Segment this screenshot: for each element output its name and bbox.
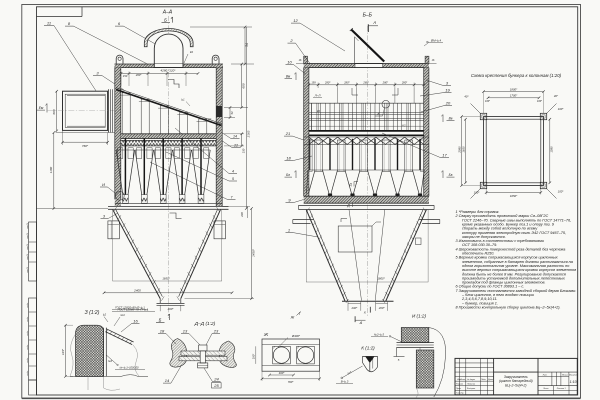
svg-text:К (1:2): К (1:2) [361, 346, 375, 351]
svg-text:280*: 280* [401, 81, 408, 85]
svg-text:Вв: Вв [449, 117, 453, 121]
svg-text:подп.: подп. [26, 357, 29, 363]
svg-text:20: 20 [445, 101, 451, 106]
svg-text:12: 12 [293, 18, 298, 23]
svg-text:подп.: подп. [26, 344, 29, 350]
svg-text:13: 13 [183, 329, 188, 334]
svg-text:11: 11 [47, 21, 51, 26]
svg-text:Листов 1: Листов 1 [556, 388, 566, 390]
svg-text:Д–Д (1:2): Д–Д (1:2) [194, 321, 216, 327]
svg-text:подп.: подп. [26, 370, 29, 376]
svg-text:280*: 280* [362, 81, 369, 85]
svg-text:подп.: подп. [26, 330, 29, 336]
svg-text:Дата: Дата [487, 379, 493, 381]
svg-text:№4: №4 [120, 313, 125, 317]
svg-text:150: 150 [242, 148, 246, 153]
svg-text:200*: 200* [167, 307, 175, 311]
svg-text:123*: 123* [61, 348, 65, 355]
svg-text:В–Ь.3: В–Ь.3 [341, 380, 349, 384]
svg-text:А–А: А–А [162, 10, 173, 16]
svg-text:инв.N: инв.N [27, 223, 29, 229]
svg-text:200*: 200* [351, 306, 359, 310]
svg-text:54: 54 [230, 111, 234, 114]
svg-text:24: 24 [213, 377, 219, 382]
svg-text:подп.: подп. [26, 302, 29, 308]
svg-text:№2–Ь.5: №2–Ь.5 [374, 333, 384, 337]
svg-text:1700*: 1700* [510, 94, 518, 98]
svg-text:Ж: Ж [290, 315, 295, 320]
svg-text:1: 1 [288, 228, 290, 233]
svg-text:21: 21 [285, 131, 290, 136]
svg-text:280*: 280* [343, 81, 350, 85]
svg-text:150: 150 [123, 74, 128, 78]
svg-text:14: 14 [165, 378, 170, 383]
svg-text:19: 19 [445, 88, 450, 93]
svg-text:10: 10 [287, 60, 292, 65]
svg-text:Пров.: Пров. [456, 388, 462, 390]
svg-text:БЦ–2–5х(4+2): БЦ–2–5х(4+2) [505, 383, 526, 387]
svg-text:К2: К2 [317, 109, 321, 113]
svg-text:инв.N: инв.N [27, 267, 29, 273]
svg-text:К2: К2 [402, 124, 406, 128]
svg-text:4280⁻′120°: 4280⁻′120° [160, 69, 176, 73]
svg-text:инв.N: инв.N [27, 244, 29, 250]
svg-text:Масса: Масса [562, 375, 568, 377]
svg-text:54: 54 [245, 43, 249, 47]
svg-text:8 Произвести контрольную сборк: 8 Произвести контрольную сборку циклона … [456, 305, 561, 309]
svg-text:18: 18 [160, 329, 165, 334]
svg-text:280*: 280* [324, 81, 331, 85]
svg-text:Лобанов: Лобанов [466, 383, 475, 385]
svg-text:Б: Б [164, 18, 167, 23]
svg-text:Схема крепления бункера к коло: Схема крепления бункера к колоннам (1:20… [471, 73, 562, 78]
svg-text:№3: №3 [108, 360, 113, 363]
svg-text:17: 17 [442, 153, 447, 158]
svg-text:Федоров: Федоров [467, 387, 475, 390]
svg-text:100*: 100* [474, 191, 480, 195]
svg-text:Ж: Ж [263, 332, 269, 337]
svg-text:инв.N: инв.N [27, 254, 29, 260]
svg-text:А: А [359, 320, 363, 325]
svg-text:23: 23 [213, 329, 219, 334]
svg-text:200*: 200* [378, 306, 386, 310]
svg-text:1580: 1580 [550, 146, 554, 153]
svg-text:Т.контр.: Т.контр. [456, 392, 465, 394]
svg-text:1:10: 1:10 [570, 380, 577, 384]
svg-text:18: 18 [286, 156, 291, 161]
svg-text:Ь1: Ь1 [181, 98, 185, 102]
svg-text:5: 5 [232, 177, 234, 181]
svg-text:600: 600 [52, 109, 56, 114]
svg-text:Подп.: Подп. [481, 378, 487, 381]
svg-text:280*: 280* [382, 81, 389, 85]
svg-text:№–Ь.1–100/200: №–Ь.1–100/200 [120, 365, 139, 369]
svg-text:И (1:2): И (1:2) [412, 314, 426, 319]
svg-text:Разраб.: Разраб. [456, 383, 464, 385]
svg-text:А: А [372, 20, 376, 25]
svg-text:760*: 760* [288, 380, 294, 384]
svg-text:280*: 280* [135, 73, 142, 77]
svg-text:200: 200 [240, 212, 244, 218]
svg-text:Ь2: Ь2 [103, 313, 107, 317]
svg-text:Ø400*: Ø400* [291, 334, 301, 338]
svg-text:ГОСТ 12586–78–П–Ь.1: ГОСТ 12586–78–П–Ь.1 [118, 307, 149, 311]
svg-text:1450*: 1450* [251, 248, 255, 257]
svg-text:№ докум.: № докум. [467, 378, 476, 381]
svg-text:1650*: 1650* [162, 277, 170, 281]
svg-text:1180: 1180 [49, 166, 53, 173]
svg-text:14: 14 [233, 135, 237, 139]
svg-text:Б–Б: Б–Б [363, 13, 373, 19]
svg-text:Ем: Ем [39, 106, 44, 110]
svg-text:600: 600 [242, 83, 246, 88]
svg-text:100*: 100* [558, 190, 564, 194]
svg-text:Бв: Бв [449, 173, 453, 177]
svg-text:Л–Л: Л–Л [314, 94, 322, 98]
svg-text:180*: 180* [485, 100, 490, 103]
svg-text:Масштаб: Масштаб [569, 375, 577, 377]
svg-text:Бв: Бв [286, 173, 290, 177]
svg-text:Лит.: Лит. [542, 375, 548, 377]
svg-text:Лист: Лист [542, 388, 548, 390]
svg-text:180*: 180* [537, 100, 542, 103]
svg-text:2163: 2163 [246, 130, 250, 138]
svg-text:Лист: Лист [459, 379, 465, 381]
svg-text:22: 22 [233, 144, 238, 148]
svg-text:100*: 100* [558, 107, 564, 111]
svg-text:400*: 400* [279, 371, 285, 375]
svg-text:16: 16 [133, 319, 138, 324]
svg-text:К2: К2 [190, 50, 194, 54]
svg-text:Б: Б [159, 318, 162, 323]
svg-text:4: 4 [232, 170, 234, 174]
svg-text:ØМ–Ь.4: ØМ–Ь.4 [430, 39, 442, 43]
svg-text:подп.: подп. [26, 316, 29, 322]
svg-text:К1: К1 [208, 117, 212, 121]
svg-text:1800*: 1800* [510, 87, 518, 91]
svg-text:25: 25 [213, 383, 219, 388]
svg-text:1650*: 1650* [510, 194, 518, 198]
svg-text:1650: 1650 [461, 146, 465, 153]
svg-text:И: И [102, 182, 105, 187]
svg-text:1800*: 1800* [377, 277, 385, 281]
svg-text:2405: 2405 [133, 289, 141, 293]
svg-text:З (1:2): З (1:2) [85, 310, 100, 316]
svg-text:760*: 760* [82, 144, 89, 148]
svg-text:инв.N: инв.N [27, 233, 29, 239]
svg-text:158: 158 [311, 81, 316, 85]
